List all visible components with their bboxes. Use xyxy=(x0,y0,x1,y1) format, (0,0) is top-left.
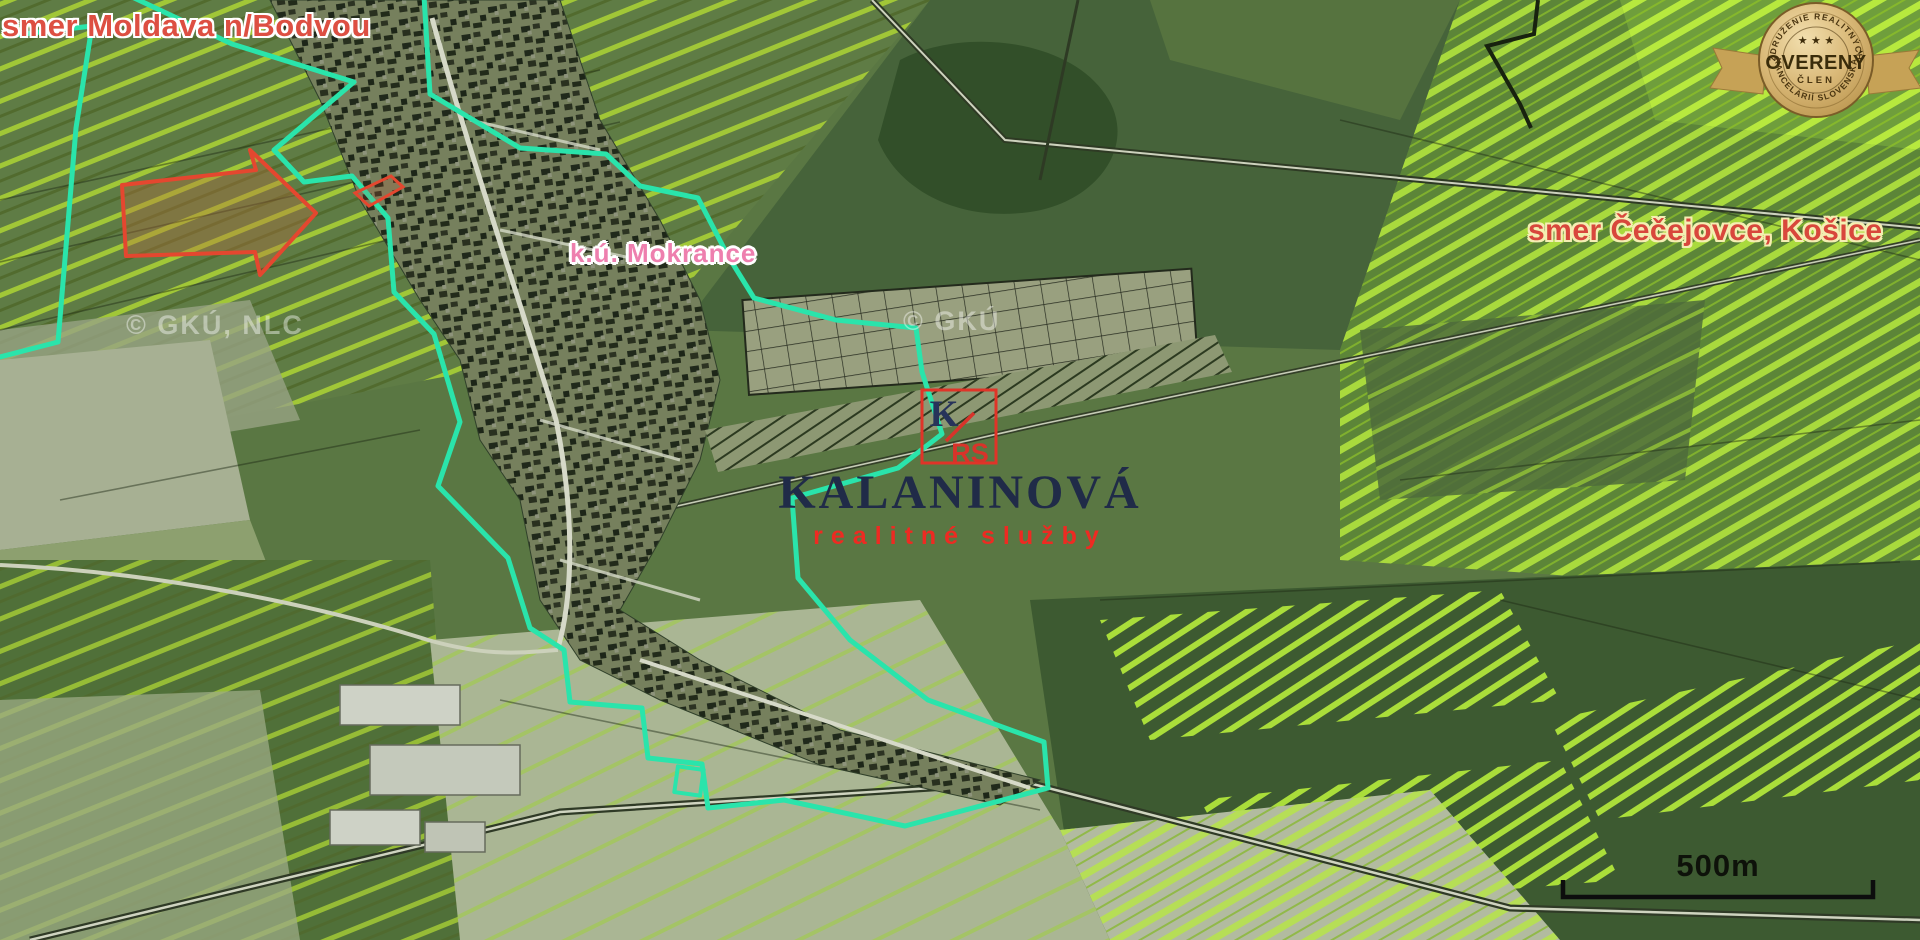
map-screenshot: K RS ZDRUŽENIE REALITNÝCH ★ ★ ★ OVERENÝ … xyxy=(0,0,1920,940)
marker-letters-rs: RS xyxy=(951,438,989,468)
badge-stars: ★ ★ ★ xyxy=(1798,34,1835,47)
brand-logo: KALANINOVÁ realitné služby xyxy=(710,468,1210,551)
watermark-gku-nlc: © GKÚ, NLC xyxy=(126,310,304,341)
watermark-gku: © GKÚ xyxy=(903,306,1000,337)
marker-letter-k: K xyxy=(930,394,959,435)
badge-subtitle: ČLEN xyxy=(1797,74,1835,86)
brand-tagline: realitné služby xyxy=(710,522,1210,551)
label-direction-cecejovce: smer Čečejovce, Košice xyxy=(1528,214,1883,248)
label-cadastral-area: k.ú. Mokrance xyxy=(570,238,756,269)
brand-name: KALANINOVÁ xyxy=(710,468,1210,518)
scale-label: 500m xyxy=(1628,848,1808,884)
label-direction-moldava: smer Moldava n/Bodvou xyxy=(2,8,371,44)
